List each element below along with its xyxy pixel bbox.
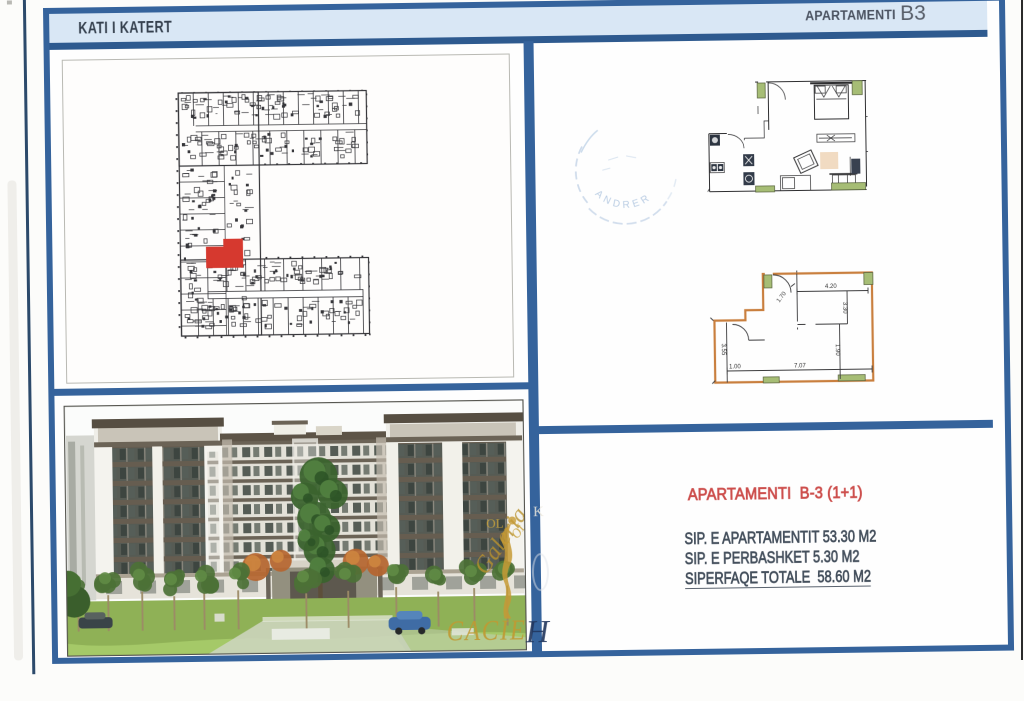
svg-text:1.00: 1.00 [729, 364, 741, 370]
svg-text:1.70: 1.70 [776, 291, 788, 304]
svg-text:ANDRER: ANDRER [593, 188, 655, 212]
svg-text:3.30: 3.30 [841, 302, 847, 314]
svg-text:4.20: 4.20 [825, 284, 837, 290]
svg-text:1.90: 1.90 [834, 344, 840, 356]
svg-text:3.55: 3.55 [720, 344, 726, 356]
svg-text:OL: OL [486, 516, 504, 531]
svg-text:7.07: 7.07 [794, 363, 806, 369]
